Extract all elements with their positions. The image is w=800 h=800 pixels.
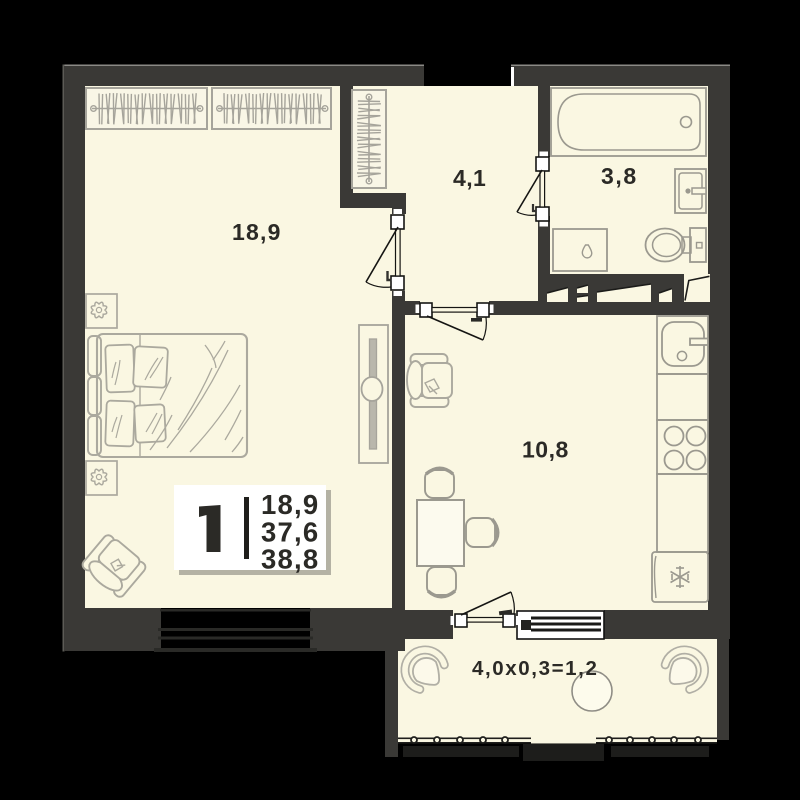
svg-text:38,8: 38,8 [261, 544, 319, 575]
svg-text:4,1: 4,1 [453, 165, 486, 191]
svg-text:10,8: 10,8 [522, 437, 569, 463]
svg-text:4,0x0,3=1,2: 4,0x0,3=1,2 [472, 657, 598, 680]
svg-text:3,8: 3,8 [601, 163, 638, 189]
svg-text:18,9: 18,9 [232, 219, 282, 245]
svg-text:18,9: 18,9 [261, 489, 319, 520]
